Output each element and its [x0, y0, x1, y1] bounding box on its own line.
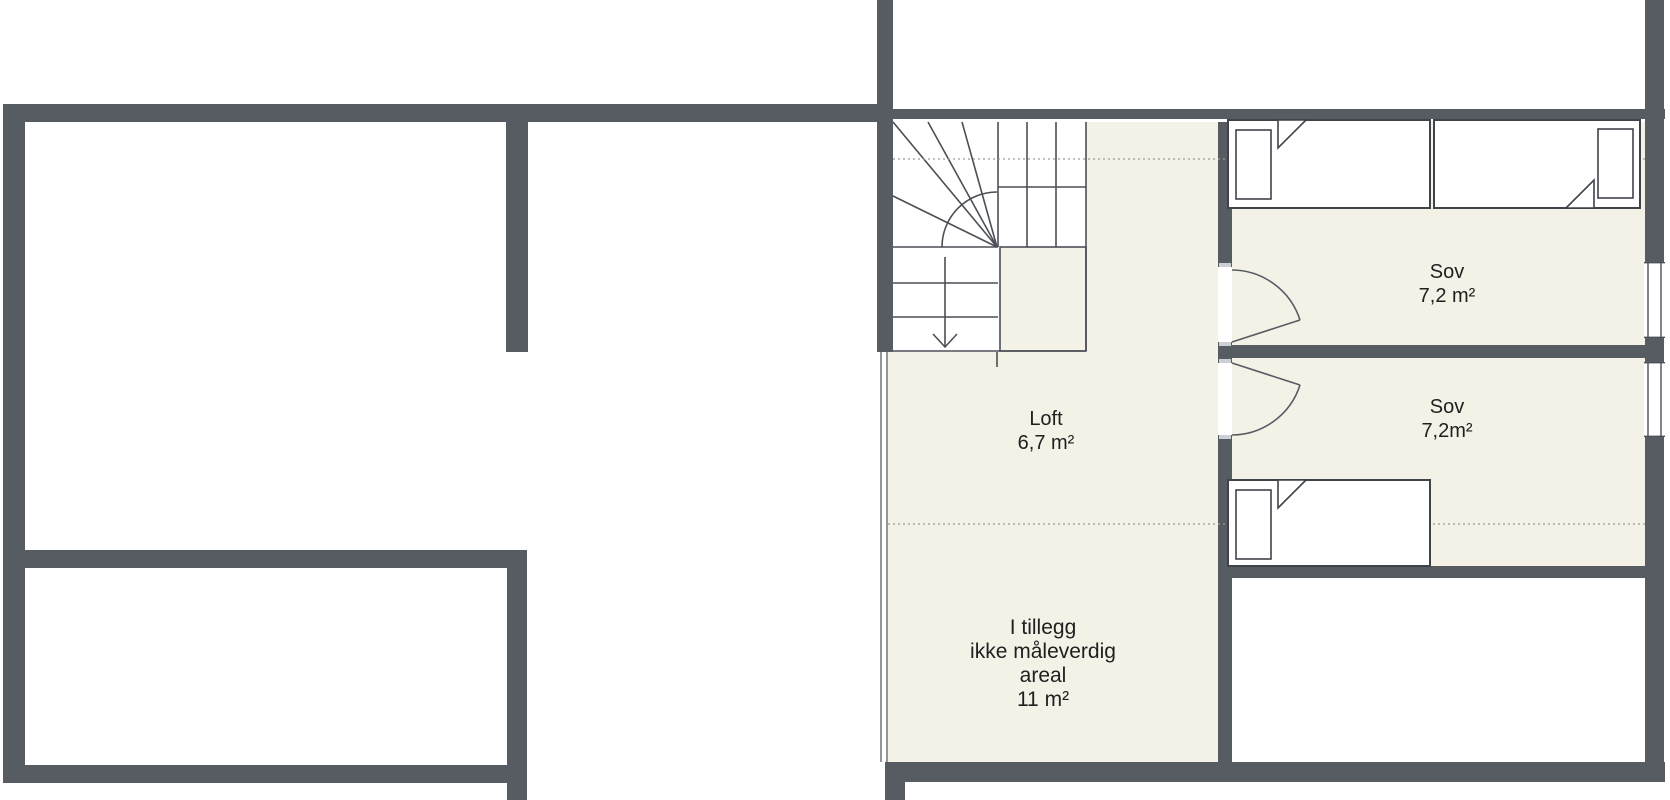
window-icon: [1644, 262, 1665, 338]
plan-linework: [0, 0, 1670, 800]
room-label-bedroom2: Sov 7,2m²: [1421, 395, 1472, 443]
stair-landing-floor: [1000, 247, 1086, 351]
room-area: 7,2 m²: [1419, 284, 1476, 308]
door-jamb-caps: [1219, 263, 1231, 439]
room-label-bedroom1: Sov 7,2 m²: [1419, 260, 1476, 308]
room-area: 7,2m²: [1421, 419, 1472, 443]
loft-open-boundary-line: [881, 352, 887, 762]
extra-area-line: 11 m²: [970, 688, 1116, 712]
room-name: Sov: [1419, 260, 1476, 284]
door-swing-bedroom1: [1232, 270, 1300, 342]
stairs-down-arrow-icon: [933, 257, 957, 347]
floor-plan: Sov 7,2 m² Sov 7,2m² Loft 6,7 m² I tille…: [0, 0, 1670, 800]
room-name: Sov: [1421, 395, 1472, 419]
bed-icon: [1434, 120, 1640, 208]
extra-area-line: I tillegg: [970, 616, 1116, 640]
extra-area-line: ikke måleverdig: [970, 640, 1116, 664]
room-name: Loft: [1018, 407, 1075, 431]
window-icon: [1644, 362, 1665, 437]
door-swing-bedroom2: [1232, 363, 1300, 435]
room-label-loft: Loft 6,7 m²: [1018, 407, 1075, 455]
extra-area-line: areal: [970, 664, 1116, 688]
bed-icon: [1228, 120, 1430, 208]
room-label-extra-area: I tillegg ikke måleverdig areal 11 m²: [970, 616, 1116, 712]
room-area: 6,7 m²: [1018, 431, 1075, 455]
bed-icon: [1228, 480, 1430, 566]
